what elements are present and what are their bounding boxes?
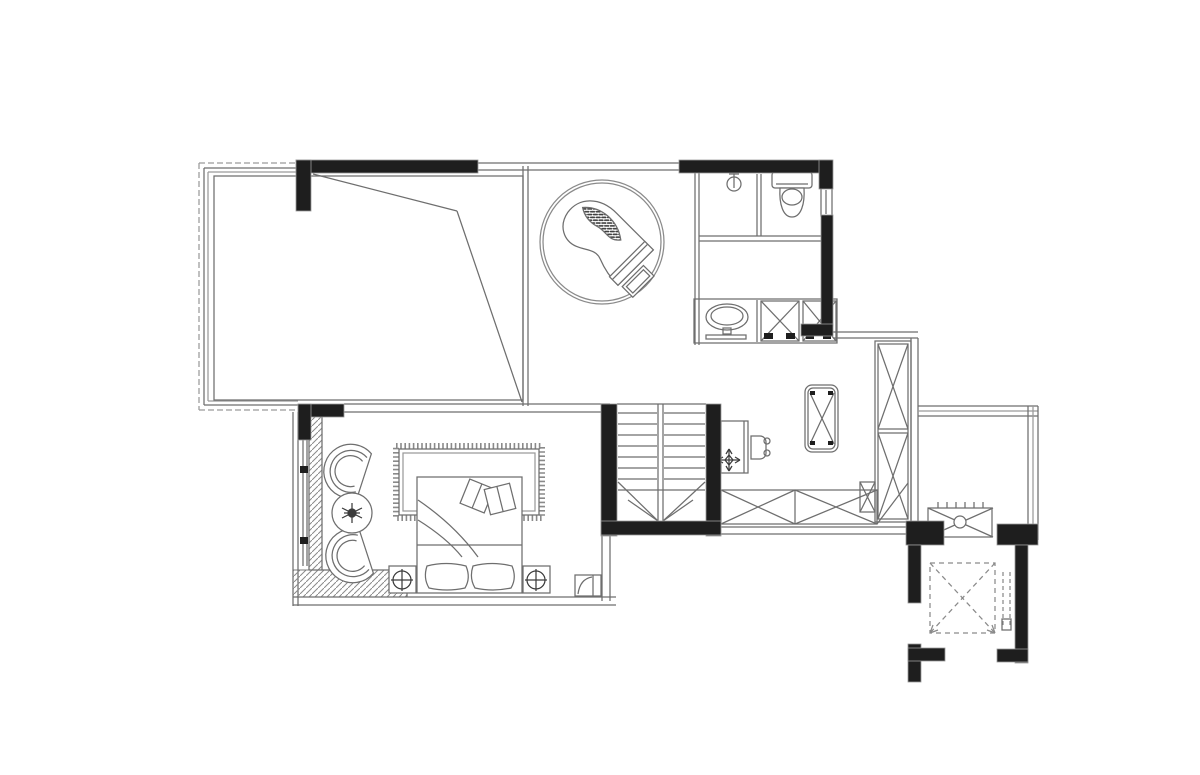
wall-segment <box>296 160 311 211</box>
washbasin-faucet <box>723 328 731 334</box>
wall-segment <box>601 404 617 536</box>
wall-segment <box>706 404 721 536</box>
console-table-foot <box>828 391 833 395</box>
wall-segment <box>601 521 721 535</box>
wall-segment <box>908 648 945 661</box>
window-frame-mark <box>300 466 308 473</box>
wardrobe <box>875 341 911 522</box>
console-table-foot <box>810 441 815 445</box>
washbasin-inner <box>711 307 743 325</box>
wall-segment <box>819 160 833 189</box>
floor-plan-svg <box>0 0 1200 775</box>
stair-winder <box>628 500 658 521</box>
wall-segment <box>801 324 833 336</box>
toilet-tank <box>772 172 812 188</box>
vanity-towel-bar <box>706 335 746 339</box>
wall-segment <box>679 160 832 173</box>
stair-winder <box>663 482 705 521</box>
washing-machine-foot <box>764 333 773 339</box>
console-table-foot <box>810 391 815 395</box>
washing-machine-foot <box>786 333 795 339</box>
potted-plant-center <box>348 509 356 517</box>
wall-segment <box>908 545 921 603</box>
window-frame-mark <box>300 537 308 544</box>
wardrobe-end-diagonal <box>877 483 908 524</box>
attic-slope-line <box>457 211 522 402</box>
terrace-floor <box>214 176 523 400</box>
floor-plan <box>0 0 1200 775</box>
stair-winder <box>618 482 658 521</box>
ac-unit-fan <box>954 516 966 528</box>
bed-pillow <box>471 564 514 591</box>
wall-segment <box>997 649 1028 662</box>
console-table-foot <box>828 441 833 445</box>
washbasin <box>706 304 748 330</box>
wall-segment <box>1015 545 1028 663</box>
wall-segment <box>821 215 833 326</box>
wall-segment <box>296 160 478 173</box>
stair-winder <box>663 500 693 521</box>
bed-pillow <box>425 564 468 591</box>
wardrobe-inner <box>878 344 908 519</box>
wall-segment <box>298 404 311 440</box>
door-detail-arc <box>578 577 592 594</box>
attic-slope-line <box>313 174 457 211</box>
wall-segment <box>997 524 1038 545</box>
wall-segment <box>906 521 944 545</box>
storage-cabinet <box>721 490 877 524</box>
